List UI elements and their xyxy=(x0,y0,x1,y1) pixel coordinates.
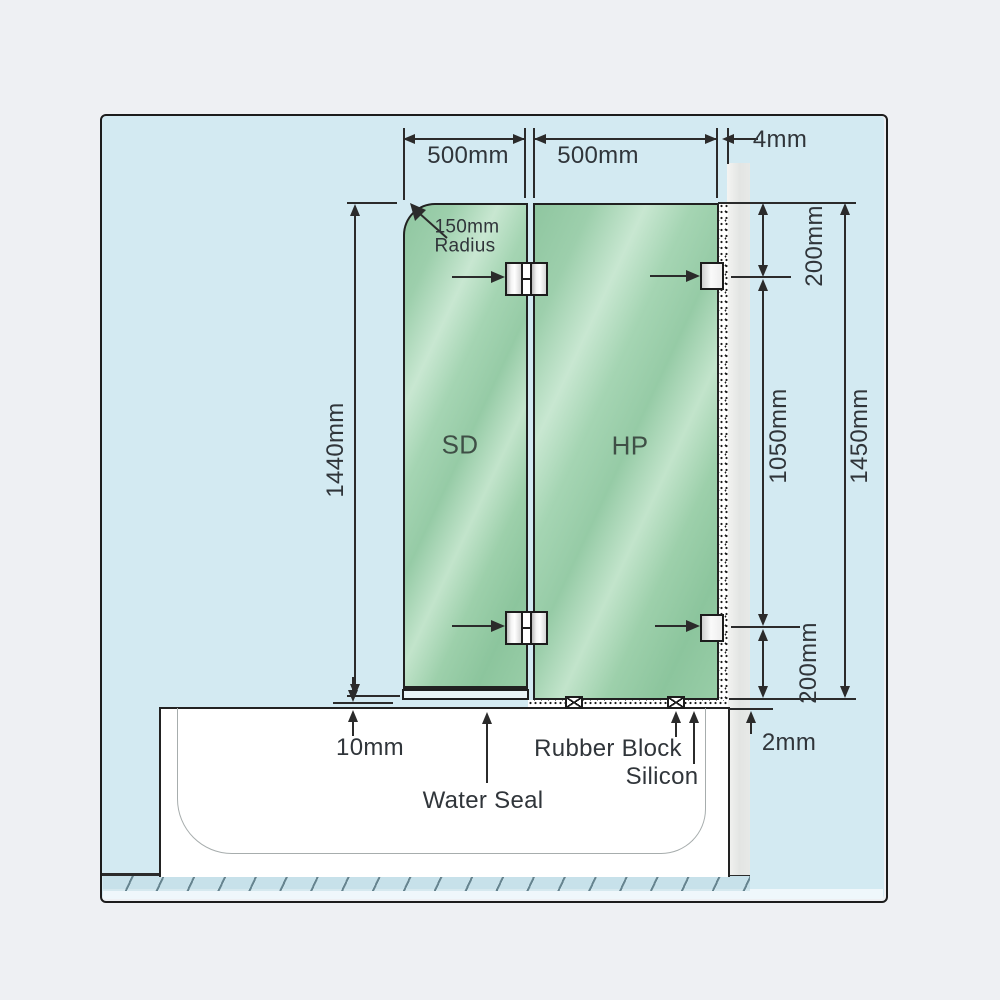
tick xyxy=(729,698,856,700)
dim-line xyxy=(534,138,717,140)
hinge-plate xyxy=(530,264,546,294)
dim-wall-gap-label: 4mm xyxy=(753,126,807,154)
panel-label-hp: HP xyxy=(612,431,649,462)
wall xyxy=(727,163,750,875)
hinge-plate xyxy=(530,613,546,643)
floor-hatch xyxy=(103,876,750,891)
dim-sd-height-label: 1440mm xyxy=(322,402,350,497)
dim-line xyxy=(354,212,356,688)
hinge-bottom-icon xyxy=(505,611,548,645)
radius-value-label: 150mm xyxy=(435,218,500,237)
wall-bracket-top-icon xyxy=(700,262,724,290)
leader-line xyxy=(486,723,488,783)
silicon-bead-horizontal xyxy=(528,700,728,707)
hinge-top-icon xyxy=(505,262,548,296)
arrowhead xyxy=(686,620,700,632)
radius-word-label: Radius xyxy=(435,237,496,256)
dim-hp-height-label: 1450mm xyxy=(846,388,874,483)
rubber-block-label: Rubber Block xyxy=(534,735,682,763)
arrowhead xyxy=(686,270,700,282)
dim-hp-width-label: 500mm xyxy=(557,142,639,170)
arrowhead xyxy=(758,279,768,291)
dim-floor-gap-label: 10mm xyxy=(336,734,404,762)
hinge-pin xyxy=(523,613,530,643)
hinge-plate xyxy=(507,613,523,643)
leader-line xyxy=(693,722,695,764)
tick xyxy=(731,626,800,628)
tick xyxy=(728,708,773,710)
tick xyxy=(333,702,393,704)
dim-line xyxy=(762,634,764,692)
dim-bracket-span-label: 1050mm xyxy=(765,388,793,483)
dim-tub-gap-label: 2mm xyxy=(762,729,816,757)
arrowhead xyxy=(758,203,768,215)
dim-line xyxy=(352,677,354,691)
arrowhead xyxy=(758,686,768,698)
tick xyxy=(718,202,856,204)
arrowhead xyxy=(705,134,717,144)
silicon-label: Silicon xyxy=(626,763,699,791)
dim-sd-width-label: 500mm xyxy=(427,142,509,170)
arrowhead xyxy=(403,134,415,144)
arrowhead xyxy=(491,620,505,632)
dim-line xyxy=(762,206,764,274)
hinge-plate xyxy=(507,264,523,294)
installation-diagram: 500mm 500mm 4mm 150mm Radius 1440mm xyxy=(0,0,1000,1000)
arrowhead xyxy=(758,629,768,641)
dim-top-offset-label: 200mm xyxy=(801,205,829,287)
arrowhead xyxy=(758,614,768,626)
dim-line xyxy=(750,722,752,734)
water-seal-label: Water Seal xyxy=(423,787,544,815)
arrowhead xyxy=(350,204,360,216)
arrowhead xyxy=(348,690,358,702)
water-seal-strip xyxy=(402,689,529,700)
dim-bottom-offset-label: 200mm xyxy=(795,622,823,704)
rubber-block-left-icon xyxy=(565,696,583,709)
rubber-block-right-icon xyxy=(667,696,685,709)
hinge-pin xyxy=(523,264,530,294)
arrowhead xyxy=(491,271,505,283)
arrowhead xyxy=(840,203,850,215)
arrowhead xyxy=(534,134,546,144)
dim-line xyxy=(403,138,525,140)
wall-bracket-bottom-icon xyxy=(700,614,724,642)
arrowhead xyxy=(513,134,525,144)
arrowhead xyxy=(840,686,850,698)
dim-line xyxy=(762,288,764,618)
panel-label-sd: SD xyxy=(442,430,479,461)
arrowhead xyxy=(758,265,768,277)
